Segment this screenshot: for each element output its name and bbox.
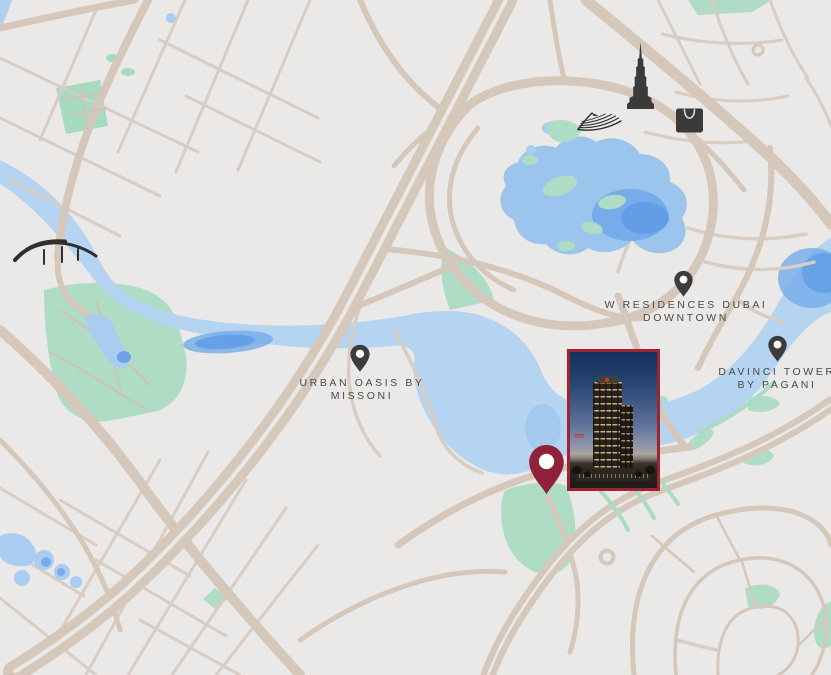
poi-label-davinci-tower: DAVINCI TOWER BY PAGANI	[718, 366, 831, 392]
photo-tree	[584, 471, 591, 477]
map-pin-icon[interactable]	[673, 269, 694, 299]
map-canvas[interactable]: W RESIDENCES DUBAI DOWNTOWN URBAN OASIS …	[0, 0, 831, 675]
map-pin-icon[interactable]	[349, 343, 371, 374]
photo-tower-crown	[597, 376, 618, 383]
poi-label-w-residences: W RESIDENCES DUBAI DOWNTOWN	[605, 299, 768, 325]
map-pin-icon[interactable]	[767, 334, 788, 364]
poi-label-line: DAVINCI TOWER	[718, 366, 831, 379]
photo-tower-wing	[620, 405, 634, 472]
map-base-art	[0, 0, 831, 675]
poi-label-urban-oasis: URBAN OASIS BY MISSONI	[299, 377, 424, 403]
photo-watermark	[575, 434, 584, 438]
poi-label-line: MISSONI	[299, 390, 424, 403]
property-location-pin-icon[interactable]	[527, 443, 566, 502]
property-photo[interactable]	[567, 349, 660, 491]
poi-label-line: BY PAGANI	[718, 379, 831, 392]
poi-label-line: URBAN OASIS BY	[299, 377, 424, 390]
photo-logo-dot	[605, 378, 609, 382]
photo-tower	[593, 382, 623, 472]
poi-label-line: DOWNTOWN	[605, 312, 768, 325]
poi-label-line: W RESIDENCES DUBAI	[605, 299, 768, 312]
